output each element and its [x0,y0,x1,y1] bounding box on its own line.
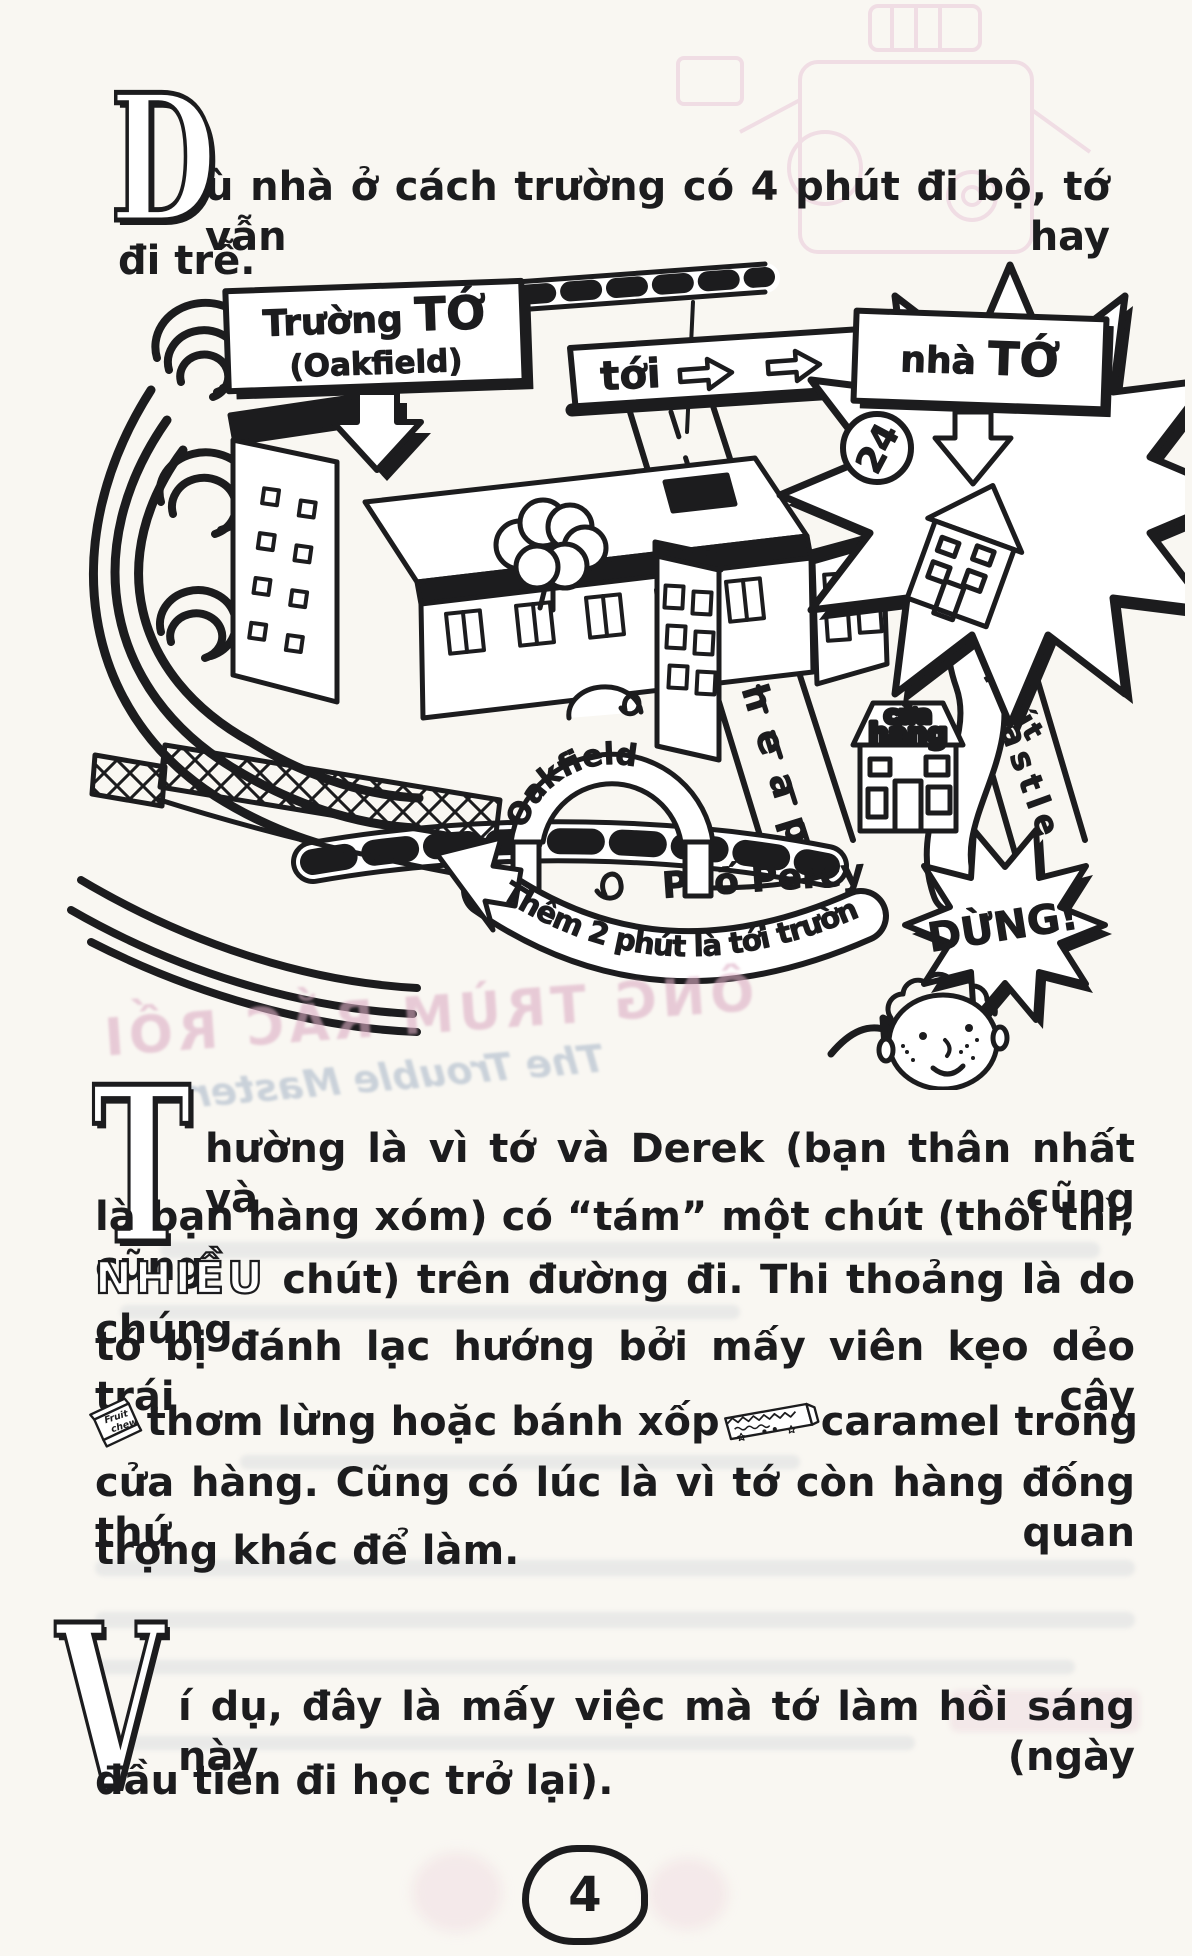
caramel-wafer-icon [720,1382,821,1462]
bleed-stripe [95,1660,1075,1674]
fruit-chew-icon: Fruit chew [88,1376,147,1468]
bleed-stripe [95,1612,1135,1628]
paragraph2-line5-text-b: caramel trong [821,1397,1138,1447]
dropcap-d: D [110,72,216,247]
paragraph2-line5: Fruit chew thơm lừng hoặc bánh xốp caram… [88,1378,1138,1466]
page-number-value: 4 [568,1867,601,1923]
toi-road-label: tới [599,351,662,400]
paragraph3-line2: đầu tiên đi học trở lại). [95,1756,613,1806]
shop-drawing: cửa hàng [853,701,963,831]
svg-text:(Oakfield): (Oakfield) [289,343,463,385]
page-number: 4 [522,1845,648,1945]
emphasis-nhieu: NHIỀU [95,1253,266,1304]
book-page: D ù nhà ở cách trường có 4 phút đi bộ, t… [0,0,1192,1956]
robot-head [870,6,980,50]
paragraph2-line7: trọng khác để làm. [95,1526,519,1576]
bleed-blob [648,1858,728,1930]
paragraph2-line5-text-a: thơm lừng hoặc bánh xốp [147,1397,720,1447]
map-illustration: V Phố Cheap [65,240,1185,1090]
svg-text:hàng: hàng [869,717,948,750]
bleed-blob [412,1852,502,1932]
house-number-badge: 24 [843,414,911,482]
